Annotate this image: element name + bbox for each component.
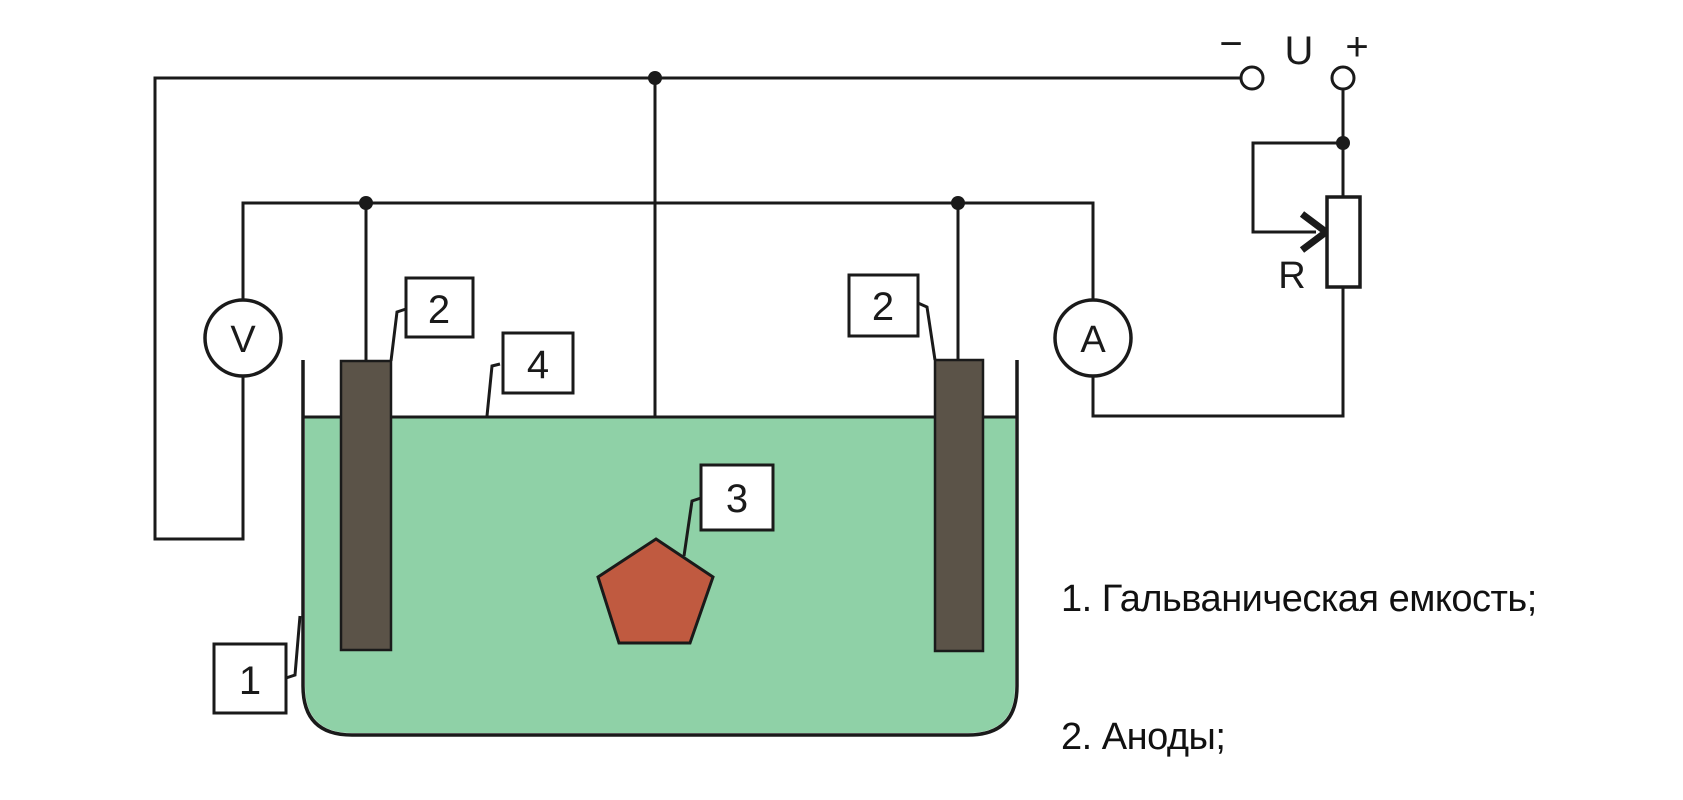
terminal-plus-icon bbox=[1332, 67, 1354, 89]
junction-dot bbox=[359, 196, 373, 210]
leader-anode-right bbox=[918, 303, 935, 360]
junction-dot bbox=[1336, 136, 1350, 150]
callout-electrolyte-number: 4 bbox=[527, 343, 549, 387]
leader-tank bbox=[286, 616, 300, 678]
legend: 1. Гальваническая емкость; 2. Аноды; 3. … bbox=[1061, 484, 1537, 800]
leader-anode-left bbox=[391, 309, 406, 361]
ammeter-label: A bbox=[1080, 319, 1106, 361]
diagram-canvas: V A R − U + 1 2 2 3 4 bbox=[0, 0, 1683, 800]
anode-right bbox=[935, 360, 983, 651]
rheostat-body bbox=[1327, 197, 1360, 287]
terminal-plus-label: + bbox=[1345, 25, 1368, 69]
wire-ammeter-return bbox=[1093, 288, 1343, 416]
junction-dot bbox=[648, 71, 662, 85]
junction-dot bbox=[951, 196, 965, 210]
callout-anode-right-number: 2 bbox=[872, 285, 894, 329]
callout-workpiece-number: 3 bbox=[726, 477, 748, 521]
voltmeter-label: V bbox=[230, 319, 256, 361]
leader-electrolyte bbox=[487, 364, 500, 416]
wire-anode-bus bbox=[243, 203, 1093, 300]
anode-left bbox=[341, 361, 391, 650]
power-source-label: U bbox=[1285, 29, 1314, 73]
terminal-minus-icon bbox=[1241, 67, 1263, 89]
legend-line-anodes: 2. Аноды; bbox=[1061, 714, 1537, 760]
rheostat-label: R bbox=[1278, 255, 1305, 297]
terminal-minus-label: − bbox=[1219, 22, 1242, 66]
callout-tank-number: 1 bbox=[239, 659, 261, 703]
legend-line-tank: 1. Гальваническая емкость; bbox=[1061, 576, 1537, 622]
callout-anode-left-number: 2 bbox=[428, 288, 450, 332]
